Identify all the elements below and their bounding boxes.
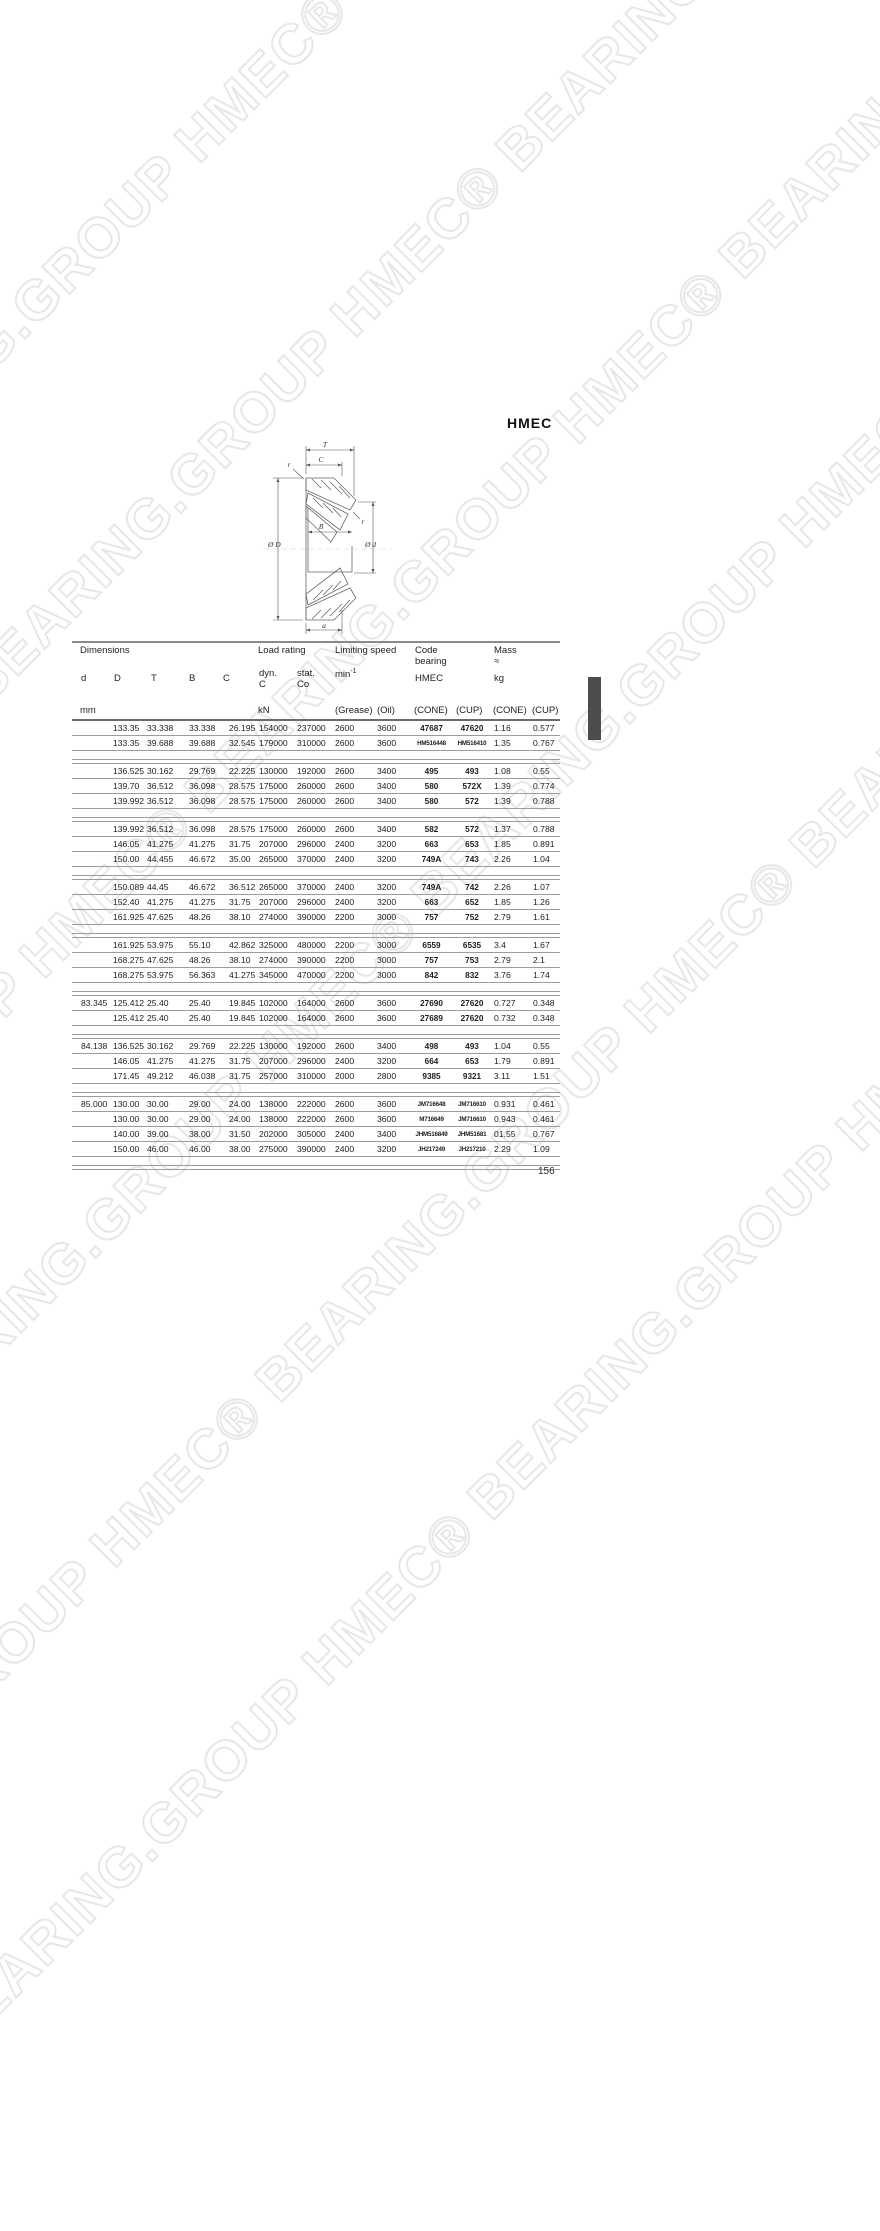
table-cell: 2.26 bbox=[491, 882, 529, 892]
col-header-stat-Co: Co bbox=[297, 679, 309, 690]
table-cell: 390000 bbox=[294, 912, 332, 922]
table-cell: JH217249 bbox=[410, 1146, 453, 1153]
table-cell: 3400 bbox=[373, 824, 410, 834]
table-cell: 749A bbox=[410, 883, 453, 892]
table-cell: 2200 bbox=[332, 940, 373, 950]
table-row: 133.3533.33833.33826.1951540002370002600… bbox=[72, 721, 560, 736]
table-cell: 3200 bbox=[373, 897, 410, 907]
table-cell: 2.79 bbox=[491, 955, 529, 965]
table-cell: 0.727 bbox=[491, 998, 529, 1008]
table-cell: 296000 bbox=[294, 839, 332, 849]
col-header-C: C bbox=[223, 673, 230, 684]
table-row: 139.99236.51236.09828.575175000260000260… bbox=[72, 794, 560, 809]
table-cell: 36.512 bbox=[226, 882, 256, 892]
table-cell: 85.000 bbox=[72, 1099, 110, 1109]
table-cell: 1.09 bbox=[529, 1144, 560, 1154]
table-row: 130.0030.0029.0024.001380002220002600360… bbox=[72, 1112, 560, 1127]
table-cell: 470000 bbox=[294, 970, 332, 980]
table-cell: 652 bbox=[453, 898, 491, 907]
col-header-hmec: HMEC bbox=[415, 673, 443, 684]
table-cell: 46.672 bbox=[186, 882, 226, 892]
table-cell: 2400 bbox=[332, 1056, 373, 1066]
table-cell: 84.138 bbox=[72, 1041, 110, 1051]
table-cell: 154000 bbox=[256, 723, 294, 733]
table-cell: JM716610 bbox=[453, 1116, 491, 1123]
table-cell: 9321 bbox=[453, 1072, 491, 1081]
table-cell: 53.975 bbox=[145, 970, 186, 980]
table-cell: 46.00 bbox=[186, 1144, 226, 1154]
group-separator bbox=[72, 983, 560, 996]
unit-mm: mm bbox=[80, 705, 96, 716]
table-cell: 664 bbox=[410, 1057, 453, 1066]
table-cell: 1.61 bbox=[529, 912, 560, 922]
table-cell: 41.275 bbox=[145, 1056, 186, 1066]
table-cell: 41.275 bbox=[226, 970, 256, 980]
col-header-kg: kg bbox=[494, 673, 504, 684]
header-code-bearing: bearing bbox=[415, 656, 447, 667]
table-cell: 2400 bbox=[332, 897, 373, 907]
table-cell: 30.162 bbox=[145, 766, 186, 776]
table-cell: 3600 bbox=[373, 1013, 410, 1023]
table-cell: M716649 bbox=[410, 1116, 453, 1123]
table-cell: 175000 bbox=[256, 781, 294, 791]
table-cell: 192000 bbox=[294, 766, 332, 776]
header-limiting-speed: Limiting speed bbox=[335, 645, 396, 656]
brand-title: HMEC bbox=[507, 415, 552, 431]
table-cell: 370000 bbox=[294, 882, 332, 892]
table-cell: 237000 bbox=[294, 723, 332, 733]
table-cell: 3.76 bbox=[491, 970, 529, 980]
table-cell: 146.05 bbox=[110, 839, 145, 849]
table-cell: 9385 bbox=[410, 1072, 453, 1081]
table-cell: 493 bbox=[453, 767, 491, 776]
unit-mass-cup: (CUP) bbox=[532, 705, 558, 716]
table-cell: 29.769 bbox=[186, 1041, 226, 1051]
unit-oil: (Oil) bbox=[377, 705, 395, 716]
table-cell: 207000 bbox=[256, 897, 294, 907]
table-cell: HM516410 bbox=[453, 740, 491, 747]
table-cell: 2200 bbox=[332, 955, 373, 965]
table-cell: 274000 bbox=[256, 955, 294, 965]
table-cell: 27690 bbox=[410, 999, 453, 1008]
table-row: 152.4041.27541.27531.7520700029600024003… bbox=[72, 895, 560, 910]
table-cell: 29.00 bbox=[186, 1099, 226, 1109]
table-cell: 44.45 bbox=[145, 882, 186, 892]
table-cell: 53.975 bbox=[145, 940, 186, 950]
table-cell: 296000 bbox=[294, 897, 332, 907]
table-cell: 0.943 bbox=[491, 1114, 529, 1124]
table-row: 140.0039.0038.0031.502020003050002400340… bbox=[72, 1127, 560, 1142]
table-cell: 2.29 bbox=[491, 1144, 529, 1154]
table-cell: 653 bbox=[453, 1057, 491, 1066]
table-cell: 663 bbox=[410, 898, 453, 907]
table-cell: 102000 bbox=[256, 998, 294, 1008]
table-cell: 3000 bbox=[373, 970, 410, 980]
table-cell: 3400 bbox=[373, 766, 410, 776]
table-cell: 39.688 bbox=[186, 738, 226, 748]
table-cell: 653 bbox=[453, 840, 491, 849]
table-cell: 222000 bbox=[294, 1114, 332, 1124]
table-cell: 325000 bbox=[256, 940, 294, 950]
table-cell: 0.788 bbox=[529, 824, 560, 834]
table-cell: 2200 bbox=[332, 970, 373, 980]
table-cell: 3200 bbox=[373, 882, 410, 892]
group-separator bbox=[72, 1157, 560, 1170]
table-cell: 3400 bbox=[373, 1129, 410, 1139]
header-approx: ≈ bbox=[494, 656, 499, 667]
table-cell: 1.85 bbox=[491, 897, 529, 907]
table-cell: 150.089 bbox=[110, 882, 145, 892]
table-row: 125.41225.4025.4019.84510200016400026003… bbox=[72, 1011, 560, 1026]
dim-label-a: a bbox=[322, 621, 326, 630]
group-separator bbox=[72, 1026, 560, 1039]
table-cell: 38.00 bbox=[186, 1129, 226, 1139]
unit-mass-cone: (CONE) bbox=[493, 705, 527, 716]
table-cell: 139.992 bbox=[110, 796, 145, 806]
table-cell: 3600 bbox=[373, 998, 410, 1008]
table-cell: 2200 bbox=[332, 912, 373, 922]
table-cell: 842 bbox=[410, 971, 453, 980]
dim-label-B: B bbox=[319, 522, 324, 531]
table-cell: 370000 bbox=[294, 854, 332, 864]
table-cell: 1.79 bbox=[491, 1056, 529, 1066]
unit-cup: (CUP) bbox=[456, 705, 482, 716]
table-cell: 495 bbox=[410, 767, 453, 776]
page-number: 156 bbox=[538, 1166, 555, 1177]
table-cell: 133.35 bbox=[110, 738, 145, 748]
table-cell: 152.40 bbox=[110, 897, 145, 907]
table-cell: 25.40 bbox=[145, 998, 186, 1008]
table-cell: 2400 bbox=[332, 839, 373, 849]
table-cell: 22.225 bbox=[226, 1041, 256, 1051]
table-cell: 3200 bbox=[373, 839, 410, 849]
table-cell: 29.00 bbox=[186, 1114, 226, 1124]
table-cell: 275000 bbox=[256, 1144, 294, 1154]
table-cell: 38.00 bbox=[226, 1144, 256, 1154]
table-cell: 41.275 bbox=[186, 897, 226, 907]
unit-cone: (CONE) bbox=[414, 705, 448, 716]
table-cell: 28.575 bbox=[226, 824, 256, 834]
table-cell: 25.40 bbox=[186, 998, 226, 1008]
table-cell: 1.07 bbox=[529, 882, 560, 892]
table-cell: 3200 bbox=[373, 1144, 410, 1154]
table-cell: 175000 bbox=[256, 824, 294, 834]
table-cell: 572 bbox=[453, 797, 491, 806]
table-cell: 202000 bbox=[256, 1129, 294, 1139]
table-cell: JM716648 bbox=[410, 1101, 453, 1108]
table-cell: 305000 bbox=[294, 1129, 332, 1139]
table-cell: 130.00 bbox=[110, 1099, 145, 1109]
dim-label-outer-dia: Ø D bbox=[267, 540, 281, 549]
col-header-T: T bbox=[151, 673, 157, 684]
table-cell: 2400 bbox=[332, 1144, 373, 1154]
section-index-tab bbox=[588, 677, 601, 740]
table-cell: 192000 bbox=[294, 1041, 332, 1051]
table-cell: 125.412 bbox=[110, 998, 145, 1008]
table-cell: 33.338 bbox=[186, 723, 226, 733]
table-cell: 580 bbox=[410, 782, 453, 791]
table-cell: 207000 bbox=[256, 839, 294, 849]
table-cell: 2600 bbox=[332, 723, 373, 733]
dim-label-r-mid: r bbox=[362, 517, 365, 526]
table-cell: JM716610 bbox=[453, 1101, 491, 1108]
table-cell: 260000 bbox=[294, 824, 332, 834]
table-cell: 130000 bbox=[256, 766, 294, 776]
bearing-diagram: T C r r B Ø D Ø d a bbox=[255, 438, 400, 643]
table-row: 150.0046.0046.0038.002750003900002400320… bbox=[72, 1142, 560, 1157]
table-cell: 0.732 bbox=[491, 1013, 529, 1023]
table-cell: 2600 bbox=[332, 796, 373, 806]
table-cell: 125.412 bbox=[110, 1013, 145, 1023]
table-row: 133.3539.68839.68832.5451790003100002600… bbox=[72, 736, 560, 751]
dim-label-bore-dia: Ø d bbox=[364, 540, 376, 549]
table-cell: 36.098 bbox=[186, 796, 226, 806]
table-cell: 27620 bbox=[453, 1014, 491, 1023]
table-cell: 3200 bbox=[373, 854, 410, 864]
table-cell: 36.098 bbox=[186, 781, 226, 791]
table-cell: 3600 bbox=[373, 1114, 410, 1124]
table-cell: 47687 bbox=[410, 724, 453, 733]
table-cell: 3400 bbox=[373, 781, 410, 791]
table-row: 161.92553.97555.1042.8623250004800002200… bbox=[72, 938, 560, 953]
table-cell: 0.767 bbox=[529, 1129, 560, 1139]
table-cell: 2600 bbox=[332, 781, 373, 791]
table-cell: 3600 bbox=[373, 723, 410, 733]
table-row: 161.92547.62548.2638.1027400039000022003… bbox=[72, 910, 560, 925]
table-cell: 2.79 bbox=[491, 912, 529, 922]
table-cell: 28.575 bbox=[226, 796, 256, 806]
table-cell: 168.275 bbox=[110, 955, 145, 965]
dim-label-r-top: r bbox=[288, 460, 291, 469]
table-cell: 0.348 bbox=[529, 1013, 560, 1023]
table-cell: 49.212 bbox=[145, 1071, 186, 1081]
table-cell: 1.85 bbox=[491, 839, 529, 849]
table-cell: 572 bbox=[453, 825, 491, 834]
table-cell: 27689 bbox=[410, 1014, 453, 1023]
table-cell: 274000 bbox=[256, 912, 294, 922]
table-cell: 2600 bbox=[332, 1114, 373, 1124]
table-cell: 25.40 bbox=[186, 1013, 226, 1023]
table-row: 168.27553.97556.36341.275345000470000220… bbox=[72, 968, 560, 983]
table-cell: 83.345 bbox=[72, 998, 110, 1008]
table-cell: 265000 bbox=[256, 854, 294, 864]
bearing-table: Dimensions Load rating Limiting speed Co… bbox=[72, 641, 560, 1170]
table-cell: JHM51681 bbox=[453, 1131, 491, 1138]
table-cell: 753 bbox=[453, 956, 491, 965]
header-code: Code bbox=[415, 645, 438, 656]
table-cell: 146.05 bbox=[110, 1056, 145, 1066]
table-row: 168.27547.62548.2638.1027400039000022003… bbox=[72, 953, 560, 968]
table-cell: 749A bbox=[410, 855, 453, 864]
table-cell: 582 bbox=[410, 825, 453, 834]
table-cell: 752 bbox=[453, 913, 491, 922]
table-cell: 179000 bbox=[256, 738, 294, 748]
table-cell: 757 bbox=[410, 913, 453, 922]
table-cell: 139.70 bbox=[110, 781, 145, 791]
table-cell: 36.512 bbox=[145, 781, 186, 791]
table-cell: 1.67 bbox=[529, 940, 560, 950]
table-cell: 260000 bbox=[294, 781, 332, 791]
table-body: 133.3533.33833.33826.1951540002370002600… bbox=[72, 721, 560, 1170]
table-cell: 1.39 bbox=[491, 781, 529, 791]
table-row: 146.0541.27541.27531.7520700029600024003… bbox=[72, 837, 560, 852]
table-cell: 36.098 bbox=[186, 824, 226, 834]
table-cell: 19.845 bbox=[226, 1013, 256, 1023]
col-header-B: B bbox=[189, 673, 195, 684]
table-cell: 1.37 bbox=[491, 824, 529, 834]
table-cell: 31.75 bbox=[226, 897, 256, 907]
table-cell: 25.40 bbox=[145, 1013, 186, 1023]
table-row: 150.08944.4546.67236.5122650003700002400… bbox=[72, 880, 560, 895]
table-row: 84.138136.52530.16229.76922.225130000192… bbox=[72, 1039, 560, 1054]
table-cell: 0.461 bbox=[529, 1114, 560, 1124]
table-cell: 0.774 bbox=[529, 781, 560, 791]
table-cell: 3400 bbox=[373, 796, 410, 806]
table-cell: 133.35 bbox=[110, 723, 145, 733]
table-cell: 260000 bbox=[294, 796, 332, 806]
table-header: Dimensions Load rating Limiting speed Co… bbox=[72, 643, 560, 721]
table-cell: 257000 bbox=[256, 1071, 294, 1081]
table-cell: 47.625 bbox=[145, 912, 186, 922]
table-cell: 48.26 bbox=[186, 912, 226, 922]
table-cell: 38.10 bbox=[226, 955, 256, 965]
table-cell: 171.45 bbox=[110, 1071, 145, 1081]
table-cell: 30.162 bbox=[145, 1041, 186, 1051]
table-cell: 28.575 bbox=[226, 781, 256, 791]
table-cell: 139.992 bbox=[110, 824, 145, 834]
table-cell: 41.275 bbox=[186, 839, 226, 849]
table-cell: 1.04 bbox=[529, 854, 560, 864]
table-cell: 164000 bbox=[294, 998, 332, 1008]
table-cell: 24.00 bbox=[226, 1114, 256, 1124]
table-cell: 27620 bbox=[453, 999, 491, 1008]
unit-kn: kN bbox=[258, 705, 270, 716]
group-separator bbox=[72, 809, 560, 822]
table-cell: 1.04 bbox=[491, 1041, 529, 1051]
table-cell: HM516448 bbox=[410, 740, 453, 747]
table-cell: 39.00 bbox=[145, 1129, 186, 1139]
table-cell: 39.688 bbox=[145, 738, 186, 748]
table-cell: 345000 bbox=[256, 970, 294, 980]
table-cell: 1.08 bbox=[491, 766, 529, 776]
table-cell: 2600 bbox=[332, 998, 373, 1008]
table-cell: 2600 bbox=[332, 766, 373, 776]
table-cell: 480000 bbox=[294, 940, 332, 950]
table-cell: 38.10 bbox=[226, 912, 256, 922]
table-cell: 3400 bbox=[373, 1041, 410, 1051]
table-row: 146.0541.27541.27531.7520700029600024003… bbox=[72, 1054, 560, 1069]
table-cell: 3000 bbox=[373, 955, 410, 965]
table-cell: 1.74 bbox=[529, 970, 560, 980]
table-cell: 0.55 bbox=[529, 1041, 560, 1051]
table-cell: 310000 bbox=[294, 1071, 332, 1081]
table-cell: 164000 bbox=[294, 1013, 332, 1023]
table-cell: 47.625 bbox=[145, 955, 186, 965]
table-cell: 48.26 bbox=[186, 955, 226, 965]
table-cell: 832 bbox=[453, 971, 491, 980]
table-cell: 41.275 bbox=[145, 897, 186, 907]
table-cell: 2600 bbox=[332, 824, 373, 834]
table-cell: 0.348 bbox=[529, 998, 560, 1008]
header-dimensions: Dimensions bbox=[80, 645, 130, 656]
table-cell: 161.925 bbox=[110, 912, 145, 922]
table-cell: 46.00 bbox=[145, 1144, 186, 1154]
table-cell: 2000 bbox=[332, 1071, 373, 1081]
table-cell: 102000 bbox=[256, 1013, 294, 1023]
col-header-dyn: dyn. bbox=[259, 668, 277, 679]
table-cell: 33.338 bbox=[145, 723, 186, 733]
table-cell: 2600 bbox=[332, 738, 373, 748]
table-cell: 6535 bbox=[453, 941, 491, 950]
table-cell: JH217210 bbox=[453, 1146, 491, 1153]
table-cell: 130.00 bbox=[110, 1114, 145, 1124]
col-header-dyn-C: C bbox=[259, 679, 266, 690]
table-cell: 207000 bbox=[256, 1056, 294, 1066]
table-cell: 663 bbox=[410, 840, 453, 849]
table-cell: 0.461 bbox=[529, 1099, 560, 1109]
table-cell: 0.931 bbox=[491, 1099, 529, 1109]
table-row: 83.345125.41225.4025.4019.84510200016400… bbox=[72, 996, 560, 1011]
table-cell: JHM516849 bbox=[410, 1131, 453, 1138]
group-separator bbox=[72, 925, 560, 938]
table-cell: 01.55 bbox=[491, 1129, 529, 1139]
table-cell: 175000 bbox=[256, 796, 294, 806]
table-cell: 3.4 bbox=[491, 940, 529, 950]
table-cell: 1.51 bbox=[529, 1071, 560, 1081]
table-cell: 161.925 bbox=[110, 940, 145, 950]
table-cell: 150.00 bbox=[110, 1144, 145, 1154]
table-cell: 31.75 bbox=[226, 1071, 256, 1081]
table-cell: 2400 bbox=[332, 854, 373, 864]
table-cell: 222000 bbox=[294, 1099, 332, 1109]
table-cell: 742 bbox=[453, 883, 491, 892]
table-cell: 46.672 bbox=[186, 854, 226, 864]
table-cell: 2400 bbox=[332, 1129, 373, 1139]
col-header-stat: stat. bbox=[297, 668, 315, 679]
table-cell: 757 bbox=[410, 956, 453, 965]
table-cell: 3200 bbox=[373, 1056, 410, 1066]
table-cell: 310000 bbox=[294, 738, 332, 748]
table-cell: 55.10 bbox=[186, 940, 226, 950]
table-cell: 0.891 bbox=[529, 839, 560, 849]
table-cell: 493 bbox=[453, 1042, 491, 1051]
table-cell: 1.16 bbox=[491, 723, 529, 733]
table-row: 150.0044.45546.67235.0026500037000024003… bbox=[72, 852, 560, 867]
table-cell: 1.35 bbox=[491, 738, 529, 748]
table-cell: 265000 bbox=[256, 882, 294, 892]
table-cell: 24.00 bbox=[226, 1099, 256, 1109]
header-mass: Mass bbox=[494, 645, 517, 656]
table-cell: 2600 bbox=[332, 1099, 373, 1109]
dim-label-C: C bbox=[318, 455, 324, 464]
table-cell: 0.767 bbox=[529, 738, 560, 748]
table-cell: 138000 bbox=[256, 1114, 294, 1124]
unit-grease: (Grease) bbox=[335, 705, 372, 716]
group-separator bbox=[72, 867, 560, 880]
table-cell: 390000 bbox=[294, 955, 332, 965]
table-cell: 168.275 bbox=[110, 970, 145, 980]
table-cell: 41.275 bbox=[186, 1056, 226, 1066]
table-cell: 1.26 bbox=[529, 897, 560, 907]
table-cell: 1.39 bbox=[491, 796, 529, 806]
table-cell: 42.862 bbox=[226, 940, 256, 950]
table-row: 136.52530.16229.76922.225130000192000260… bbox=[72, 764, 560, 779]
table-cell: 29.769 bbox=[186, 766, 226, 776]
table-cell: 26.195 bbox=[226, 723, 256, 733]
table-cell: 150.00 bbox=[110, 854, 145, 864]
table-cell: 498 bbox=[410, 1042, 453, 1051]
table-cell: 31.50 bbox=[226, 1129, 256, 1139]
